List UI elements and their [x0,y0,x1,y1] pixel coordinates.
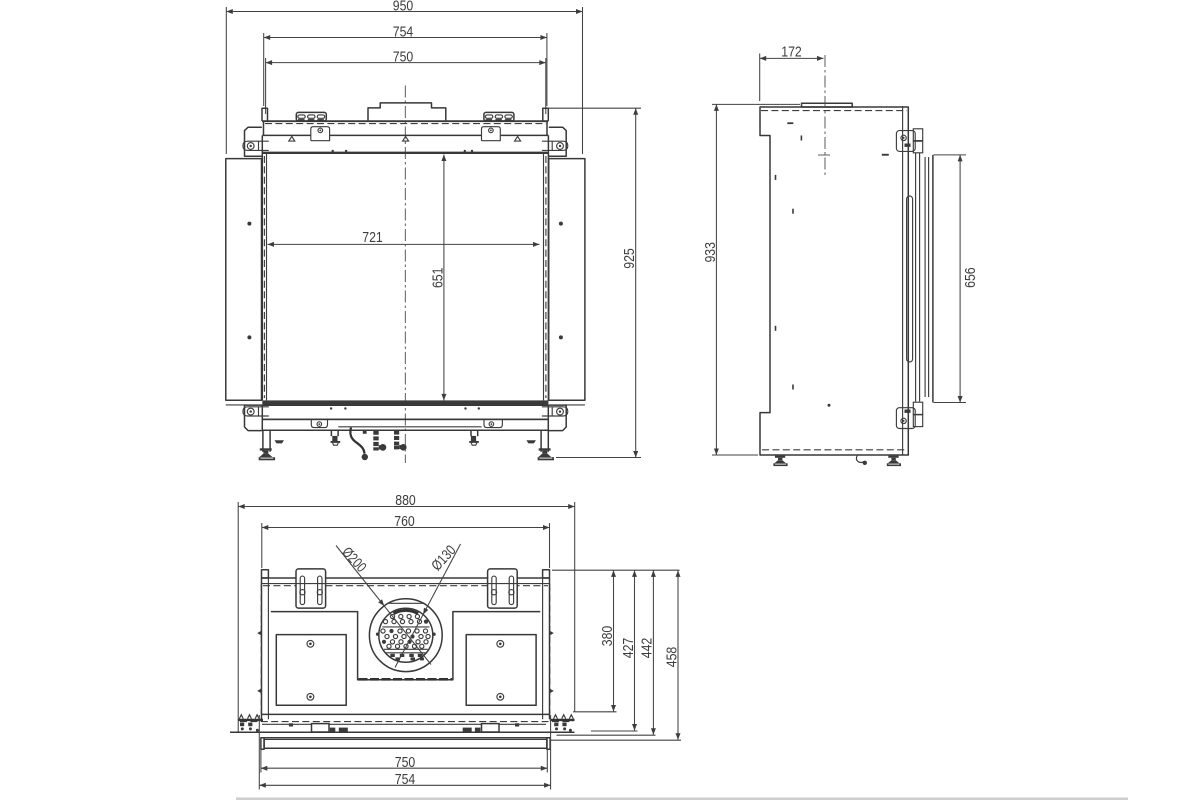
svg-text:933: 933 [703,242,719,262]
svg-text:Ø200: Ø200 [338,544,369,575]
svg-text:380: 380 [600,626,616,647]
svg-text:442: 442 [640,638,656,659]
svg-text:651: 651 [431,268,447,289]
svg-text:721: 721 [362,230,383,246]
svg-text:754: 754 [395,772,416,788]
svg-text:950: 950 [393,0,414,15]
svg-text:880: 880 [395,493,416,509]
svg-text:656: 656 [963,267,979,288]
svg-text:925: 925 [622,248,638,269]
svg-text:754: 754 [393,24,414,40]
svg-text:458: 458 [665,647,681,668]
svg-text:427: 427 [621,638,637,659]
svg-text:Ø130: Ø130 [429,543,460,574]
svg-text:172: 172 [781,45,802,61]
svg-text:750: 750 [395,755,416,771]
svg-text:750: 750 [393,49,414,65]
svg-text:760: 760 [394,514,415,530]
